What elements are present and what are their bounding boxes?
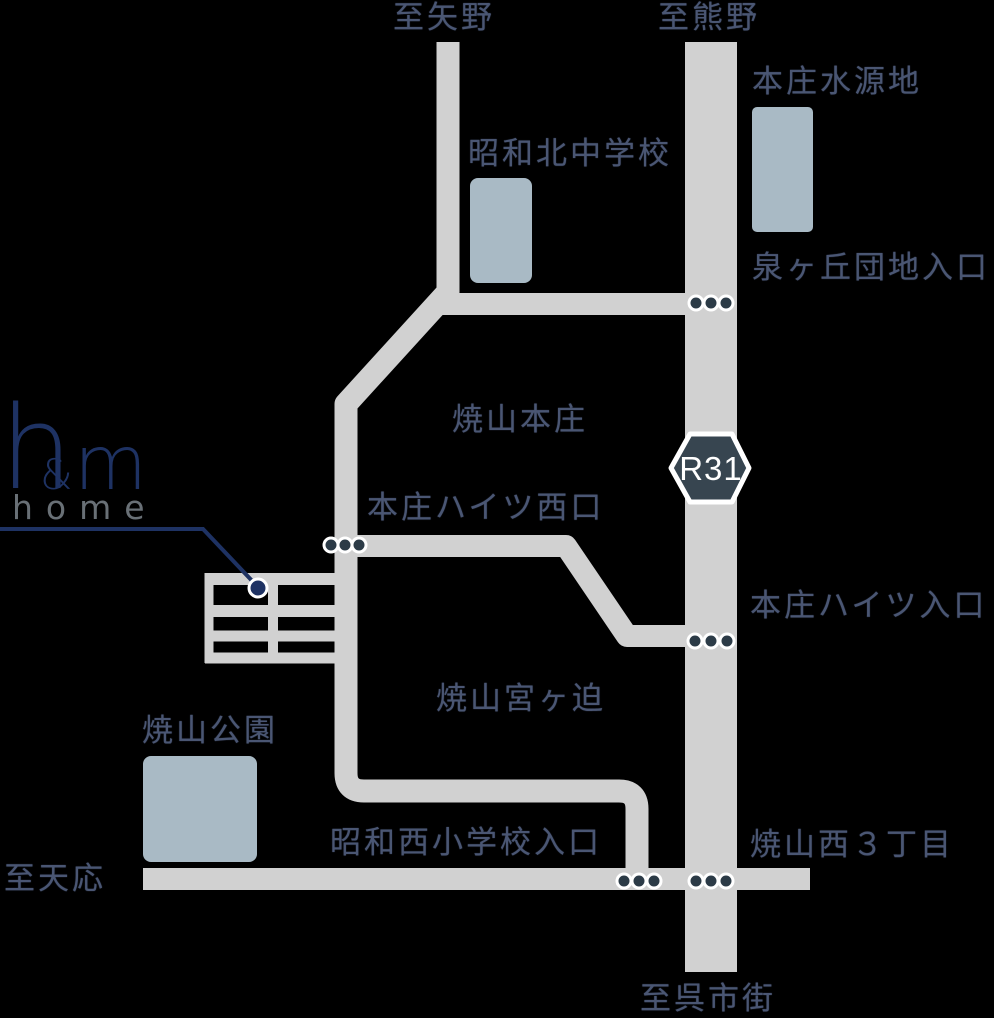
- honjo-water-source-building: [752, 107, 813, 232]
- yakeyama-park-building: [143, 756, 257, 862]
- label-honjo-heights-entrance: 本庄ハイツ入口: [750, 588, 987, 624]
- route-31-label: R31: [679, 450, 743, 487]
- intersection-honjo-heights-entrance: [688, 634, 734, 648]
- logo: h & m home: [0, 382, 158, 527]
- showa-kita-junior-high-building: [470, 178, 532, 283]
- intersection-showa-nishi-elementary: [617, 874, 661, 888]
- label-showa-nishi-elementary-entrance: 昭和西小学校入口: [330, 825, 602, 861]
- label-yakeyama-miyagasako: 焼山宮ヶ迫: [436, 681, 606, 717]
- logo-subtitle: home: [12, 488, 158, 527]
- road-honjo-heights: [335, 546, 711, 636]
- label-yakeyama-honjo: 焼山本庄: [452, 402, 588, 438]
- intersection-honjo-heights-west: [324, 538, 366, 552]
- label-yakeyama-nishi-3chome: 焼山西３丁目: [750, 827, 954, 863]
- label-to-yano: 至矢野: [393, 0, 495, 36]
- intersection-yakeyama-nishi-3chome: [689, 874, 733, 888]
- location-marker-dot: [249, 579, 267, 597]
- label-showa-kita-junior-high: 昭和北中学校: [468, 136, 672, 172]
- label-yakeyama-park: 焼山公園: [142, 713, 278, 749]
- label-izumigaoka-danchi-entrance: 泉ヶ丘団地入口: [752, 250, 990, 286]
- intersection-izumigaoka: [689, 296, 733, 310]
- label-honjo-heights-west-exit: 本庄ハイツ西口: [367, 490, 604, 526]
- access-map: h & m home: [0, 0, 994, 1018]
- label-to-kumano: 至熊野: [658, 0, 760, 36]
- hm-home-shop: [205, 573, 341, 663]
- route-31-shield: R31: [671, 434, 749, 502]
- label-honjo-water-source: 本庄水源地: [752, 64, 922, 100]
- label-to-kure-city: 至呉市街: [640, 981, 776, 1017]
- label-to-tenno: 至天応: [4, 861, 106, 897]
